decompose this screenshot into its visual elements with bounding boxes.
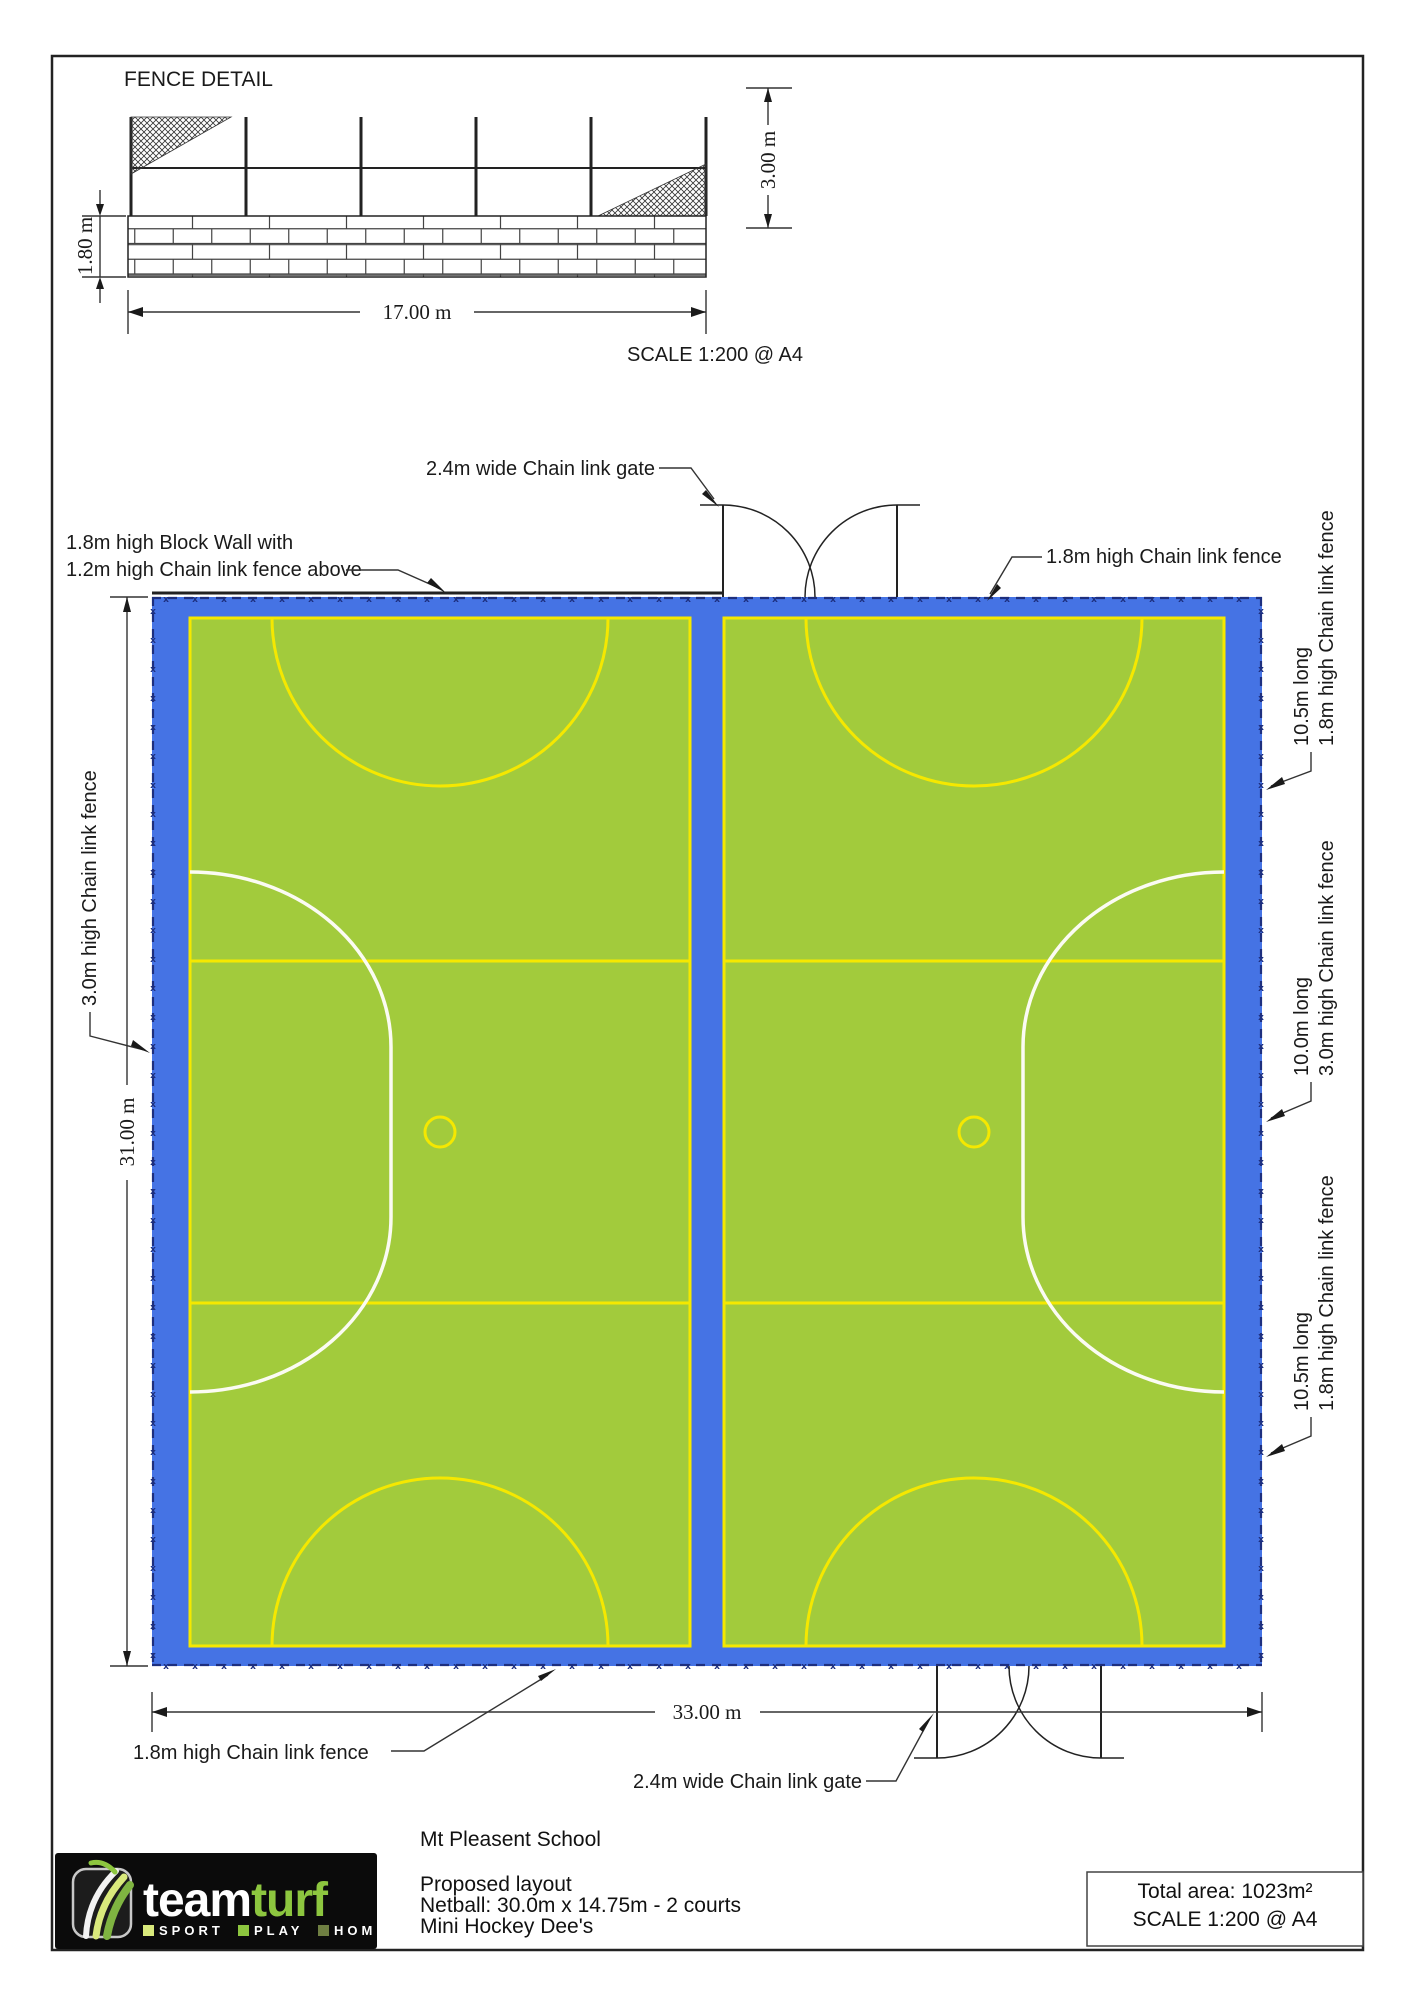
fence-x-mark: x xyxy=(150,607,156,617)
fence-detail-title: FENCE DETAIL xyxy=(124,68,273,91)
fence-x-mark: x xyxy=(1258,1390,1264,1400)
fence-x-mark: x xyxy=(569,1662,575,1672)
totals-box: Total area: 1023m² SCALE 1:200 @ A4 xyxy=(1087,1872,1363,1946)
fence-x-mark: x xyxy=(150,1419,156,1429)
side-label-2-line2: 3.0m high Chain link fence xyxy=(1316,840,1338,1076)
fence-x-mark: x xyxy=(1258,868,1264,878)
fence-x-mark: x xyxy=(1207,595,1213,605)
tagline-square-sport xyxy=(143,1925,154,1936)
fence-x-mark: x xyxy=(150,1332,156,1342)
fence-x-mark: x xyxy=(743,595,749,605)
dim-fence-height-text: 3.00 m xyxy=(756,131,780,189)
fence-x-mark: x xyxy=(888,1662,894,1672)
project-line-2: Netball: 30.0m x 14.75m - 2 courts xyxy=(420,1894,741,1917)
fence-x-mark: x xyxy=(772,595,778,605)
netting-hatch-right xyxy=(598,164,706,216)
fence-x-mark: x xyxy=(1258,1477,1264,1487)
fence-x-mark: x xyxy=(150,1303,156,1313)
plan-scale-text: SCALE 1:200 @ A4 xyxy=(1133,1908,1318,1931)
fence-x-mark: x xyxy=(511,1662,517,1672)
fence-x-mark: x xyxy=(1258,1448,1264,1458)
fence-x-mark: x xyxy=(150,1013,156,1023)
dim-fence-height: 3.00 m xyxy=(746,88,792,228)
fence-x-mark: x xyxy=(946,595,952,605)
grass-icon xyxy=(73,1862,131,1937)
side-label-1-line1: 10.5m long xyxy=(1291,647,1313,746)
fence-x-mark: x xyxy=(150,1042,156,1052)
fence-x-mark: x xyxy=(221,595,227,605)
fence-x-mark: x xyxy=(192,595,198,605)
fence-x-mark: x xyxy=(1258,1158,1264,1168)
logo-word-turf: turf xyxy=(251,1874,329,1927)
fence-x-mark: x xyxy=(192,1662,198,1672)
fence-x-mark: x xyxy=(1258,1274,1264,1284)
fence-x-mark: x xyxy=(1258,1651,1264,1661)
logo-word-team: team xyxy=(143,1874,251,1927)
block-wall-label-line1: 1.8m high Block Wall with xyxy=(66,532,293,554)
fence-x-mark: x xyxy=(1236,595,1242,605)
fence-x-mark: x xyxy=(150,1477,156,1487)
fence-x-mark: x xyxy=(1258,781,1264,791)
title-block: Mt Pleasent School teamturf SPORT PLAY H… xyxy=(55,1828,1363,1949)
fence-x-mark: x xyxy=(279,595,285,605)
fence-x-mark: x xyxy=(830,1662,836,1672)
fence-x-mark: x xyxy=(163,595,169,605)
client-name: Mt Pleasent School xyxy=(420,1828,601,1851)
fence-x-mark: x xyxy=(150,810,156,820)
fence-x-mark: x xyxy=(150,1651,156,1661)
fence-x-mark: x xyxy=(859,595,865,605)
fence-x-mark: x xyxy=(1258,1187,1264,1197)
fence-x-mark: x xyxy=(1258,1361,1264,1371)
fence-x-mark: x xyxy=(150,636,156,646)
fence-x-mark: x xyxy=(1258,1564,1264,1574)
fence-x-mark: x xyxy=(1258,955,1264,965)
teamturf-logo: teamturf SPORT PLAY HOME xyxy=(55,1853,389,1949)
fence-x-mark: x xyxy=(150,1245,156,1255)
tagline-sport: SPORT xyxy=(159,1923,224,1938)
fence-x-mark: x xyxy=(975,1662,981,1672)
total-area-text: Total area: 1023m² xyxy=(1137,1880,1312,1903)
fence-x-mark: x xyxy=(150,839,156,849)
fence-x-mark: x xyxy=(221,1662,227,1672)
tagline-square-home xyxy=(318,1925,329,1936)
fence-x-mark: x xyxy=(714,1662,720,1672)
side-label-3-line1: 10.5m long xyxy=(1291,1312,1313,1411)
fence-x-mark: x xyxy=(1258,694,1264,704)
fence-x-mark: x xyxy=(627,595,633,605)
fence-x-mark: x xyxy=(1091,595,1097,605)
fence-x-mark: x xyxy=(150,1506,156,1516)
fence-x-mark: x xyxy=(685,595,691,605)
fence-x-mark: x xyxy=(250,1662,256,1672)
fence-x-mark: x xyxy=(453,595,459,605)
logo-wordmark: teamturf xyxy=(143,1874,329,1927)
fence-x-mark: x xyxy=(1258,1216,1264,1226)
fence-x-mark: x xyxy=(1091,1662,1097,1672)
fence-x-mark: x xyxy=(830,595,836,605)
courts-plan-section: xxxxxxxxxxxxxxxxxxxxxxxxxxxxxxxxxxxxxxxx… xyxy=(66,458,1338,1793)
fence-x-mark: x xyxy=(150,1564,156,1574)
fence-x-mark: x xyxy=(1258,984,1264,994)
side-label-2-line1: 10.0m long xyxy=(1291,977,1313,1076)
fence-x-mark: x xyxy=(1258,839,1264,849)
fence-x-mark: x xyxy=(163,1662,169,1672)
fence-x-mark: x xyxy=(917,1662,923,1672)
fence-x-mark: x xyxy=(859,1662,865,1672)
fence-x-mark: x xyxy=(1004,595,1010,605)
fence-x-mark: x xyxy=(150,1622,156,1632)
fence-x-mark: x xyxy=(1258,897,1264,907)
fence-x-mark: x xyxy=(1258,1071,1264,1081)
fence-x-mark: x xyxy=(1258,1506,1264,1516)
block-wall-label-line2: 1.2m high Chain link fence above xyxy=(66,559,362,581)
gate-top xyxy=(700,505,920,597)
fence-x-mark: x xyxy=(308,595,314,605)
block-wall-detail xyxy=(128,216,706,277)
fence-x-mark: x xyxy=(279,1662,285,1672)
project-description: Proposed layout Netball: 30.0m x 14.75m … xyxy=(420,1873,741,1938)
fence-x-mark: x xyxy=(150,1274,156,1284)
fence-x-mark: x xyxy=(888,595,894,605)
fence-x-mark: x xyxy=(656,1662,662,1672)
fence-x-mark: x xyxy=(395,595,401,605)
tagline-square-play xyxy=(238,1925,249,1936)
fence-x-mark: x xyxy=(1258,1535,1264,1545)
fence-x-mark: x xyxy=(1149,595,1155,605)
court-left xyxy=(190,618,690,1646)
fence-x-mark: x xyxy=(1258,1593,1264,1603)
fence-x-mark: x xyxy=(656,595,662,605)
fence-x-mark: x xyxy=(1258,1100,1264,1110)
fence-x-mark: x xyxy=(150,1448,156,1458)
fence-x-mark: x xyxy=(801,1662,807,1672)
fence-x-mark: x xyxy=(946,1662,952,1672)
fence-x-mark: x xyxy=(150,665,156,675)
tagline-play: PLAY xyxy=(254,1923,303,1938)
fence-x-mark: x xyxy=(424,1662,430,1672)
fence-x-mark: x xyxy=(1033,595,1039,605)
fence-x-mark: x xyxy=(150,1216,156,1226)
fence-top-right-label: 1.8m high Chain link fence xyxy=(1046,546,1282,568)
fence-x-mark: x xyxy=(1258,1332,1264,1342)
fence-x-mark: x xyxy=(975,595,981,605)
fence-x-mark: x xyxy=(1062,595,1068,605)
fence-x-mark: x xyxy=(1149,1662,1155,1672)
fence-bottom-left-label: 1.8m high Chain link fence xyxy=(133,1742,369,1764)
fence-x-mark: x xyxy=(482,1662,488,1672)
dim-fence-length: 17.00 m xyxy=(128,290,706,334)
fence-x-mark: x xyxy=(366,1662,372,1672)
fence-x-mark: x xyxy=(1258,926,1264,936)
fence-x-mark: x xyxy=(150,926,156,936)
dim-plan-width-text: 33.00 m xyxy=(673,1700,742,1724)
fence-x-mark: x xyxy=(685,1662,691,1672)
fence-x-mark: x xyxy=(150,1158,156,1168)
project-line-3: Mini Hockey Dee's xyxy=(420,1915,593,1938)
project-line-1: Proposed layout xyxy=(420,1873,572,1896)
netting-hatch-left xyxy=(131,117,231,174)
side-label-1-line2: 1.8m high Chain link fence xyxy=(1316,510,1338,746)
fence-x-mark: x xyxy=(511,595,517,605)
fence-x-mark: x xyxy=(1258,752,1264,762)
court-right xyxy=(724,618,1224,1646)
fence-x-mark: x xyxy=(308,1662,314,1672)
dim-wall-height: 1.80 m xyxy=(73,190,126,303)
gate-top-label: 2.4m wide Chain link gate xyxy=(426,458,655,480)
fence-x-mark: x xyxy=(1178,1662,1184,1672)
fence-x-mark: x xyxy=(1258,1303,1264,1313)
fence-x-mark: x xyxy=(1258,1042,1264,1052)
fence-x-mark: x xyxy=(1258,665,1264,675)
drawing-page: FENCE DETAIL 1.80 m 3 xyxy=(0,0,1413,2000)
fence-x-mark: x xyxy=(150,694,156,704)
dim-wall-height-text: 1.80 m xyxy=(73,217,97,275)
fence-x-mark: x xyxy=(801,595,807,605)
logo-tagline: SPORT PLAY HOME xyxy=(143,1923,389,1938)
fence-x-mark: x xyxy=(1258,1245,1264,1255)
fence-x-mark: x xyxy=(627,1662,633,1672)
fence-x-mark: x xyxy=(1120,595,1126,605)
fence-x-mark: x xyxy=(598,1662,604,1672)
fence-x-mark: x xyxy=(598,595,604,605)
fence-x-mark: x xyxy=(1178,595,1184,605)
fence-x-mark: x xyxy=(150,1593,156,1603)
fence-x-mark: x xyxy=(366,595,372,605)
fence-x-mark: x xyxy=(1258,723,1264,733)
fence-x-mark: x xyxy=(395,1662,401,1672)
fence-x-mark: x xyxy=(150,897,156,907)
fence-x-mark: x xyxy=(337,595,343,605)
fence-x-mark: x xyxy=(150,781,156,791)
fence-x-mark: x xyxy=(150,1535,156,1545)
fence-x-mark: x xyxy=(772,1662,778,1672)
fence-x-mark: x xyxy=(150,955,156,965)
fence-x-mark: x xyxy=(453,1662,459,1672)
dim-fence-length-text: 17.00 m xyxy=(383,300,452,324)
fence-x-mark: x xyxy=(714,595,720,605)
fence-x-mark: x xyxy=(150,868,156,878)
fence-x-mark: x xyxy=(1258,1129,1264,1139)
fence-x-mark: x xyxy=(569,595,575,605)
fence-x-mark: x xyxy=(150,984,156,994)
fence-x-mark: x xyxy=(150,1361,156,1371)
fence-x-mark: x xyxy=(1258,1013,1264,1023)
fence-x-mark: x xyxy=(150,752,156,762)
fence-x-mark: x xyxy=(743,1662,749,1672)
fence-detail-scale: SCALE 1:200 @ A4 xyxy=(627,344,803,366)
fence-x-mark: x xyxy=(150,1187,156,1197)
fence-x-mark: x xyxy=(1207,1662,1213,1672)
fence-x-mark: x xyxy=(424,595,430,605)
dim-plan-width: 33.00 m xyxy=(152,1692,1262,1732)
fence-x-mark: x xyxy=(337,1662,343,1672)
fence-x-mark: x xyxy=(540,1662,546,1672)
fence-detail-section: FENCE DETAIL 1.80 m 3 xyxy=(73,68,803,366)
fence-x-mark: x xyxy=(1120,1662,1126,1672)
fence-left-label: 3.0m high Chain link fence xyxy=(79,770,101,1006)
fence-x-mark: x xyxy=(150,723,156,733)
fence-x-mark: x xyxy=(150,1129,156,1139)
site-plan-drawing: FENCE DETAIL 1.80 m 3 xyxy=(0,0,1413,2000)
fence-x-mark: x xyxy=(150,1390,156,1400)
fence-x-mark: x xyxy=(1258,810,1264,820)
fence-x-mark: x xyxy=(1236,1662,1242,1672)
dim-plan-height-text: 31.00 m xyxy=(115,1098,139,1167)
fence-x-mark: x xyxy=(1258,636,1264,646)
side-label-3-line2: 1.8m high Chain link fence xyxy=(1316,1175,1338,1411)
fence-x-mark: x xyxy=(150,1100,156,1110)
fence-x-mark: x xyxy=(1258,1622,1264,1632)
fence-x-mark: x xyxy=(1062,1662,1068,1672)
fence-x-mark: x xyxy=(1033,1662,1039,1672)
gate-bottom-label: 2.4m wide Chain link gate xyxy=(633,1771,862,1793)
tagline-home: HOME xyxy=(334,1923,389,1938)
fence-x-mark: x xyxy=(150,1071,156,1081)
fence-x-mark: x xyxy=(1258,607,1264,617)
fence-x-mark: x xyxy=(482,595,488,605)
fence-posts xyxy=(131,117,706,216)
dim-plan-height: 31.00 m xyxy=(110,597,148,1666)
fence-x-mark: x xyxy=(540,595,546,605)
fence-x-mark: x xyxy=(1258,1419,1264,1429)
fence-x-mark: x xyxy=(250,595,256,605)
fence-x-mark: x xyxy=(917,595,923,605)
